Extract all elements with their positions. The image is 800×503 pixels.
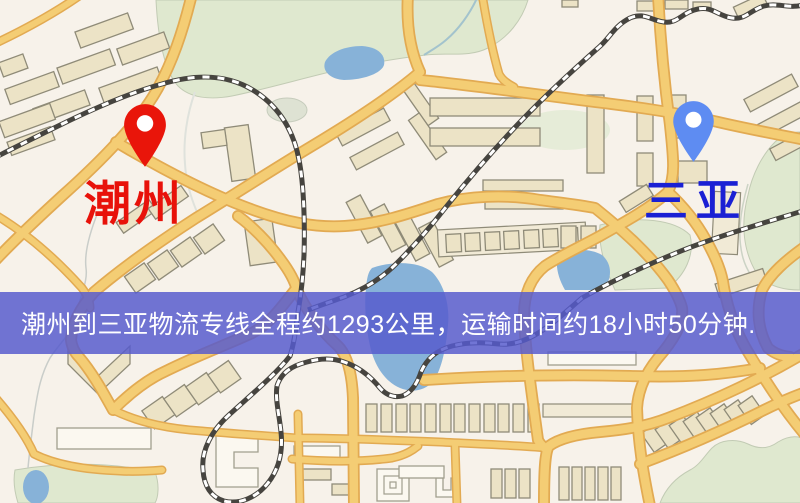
destination-pin[interactable] [671, 100, 716, 164]
red-map-pin-icon [124, 104, 166, 167]
base-map [0, 0, 800, 503]
route-info-banner: 潮州到三亚物流专线全程约1293公里，运输时间约18小时50分钟. [0, 292, 800, 354]
blue-map-pin-icon [673, 101, 714, 162]
destination-label: 三亚 [644, 180, 748, 224]
origin-pin[interactable] [123, 103, 167, 169]
map-canvas [0, 0, 800, 503]
origin-label: 潮州 [84, 180, 184, 227]
route-info-text: 潮州到三亚物流专线全程约1293公里，运输时间约18小时50分钟. [21, 305, 756, 341]
